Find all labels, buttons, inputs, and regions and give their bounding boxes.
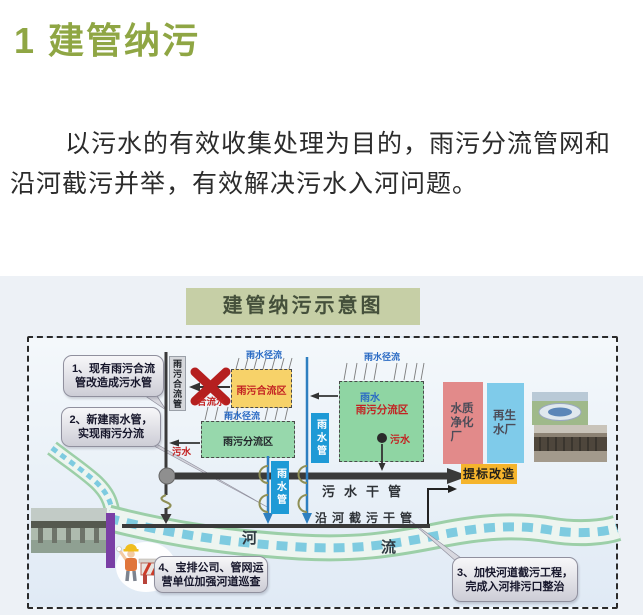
river-label-he: 河 xyxy=(242,527,257,548)
callout-4-line-1: 4、宝排公司、管网运 xyxy=(158,561,263,575)
down-arrowhead xyxy=(263,513,273,524)
callout-3: 3、加快河道截污工程， 完成入河排污口整治 xyxy=(452,557,578,602)
outfall-purple-bar xyxy=(106,513,115,568)
callout-1-line-2: 管改造成污水管 xyxy=(75,376,152,390)
bridge-photo xyxy=(31,508,107,553)
rain-pipe-label-left: 雨水管 xyxy=(271,461,289,514)
rain-runoff-label-3: 雨水径流 xyxy=(364,350,400,363)
separate-zone-right-label: 雨污分流区 xyxy=(345,402,419,417)
callout-3-line-2: 完成入河排污口整治 xyxy=(466,580,565,594)
callout-4: 4、宝排公司、管网运 营单位加强河道巡查 xyxy=(154,556,268,593)
callout-1: 1、现有雨污合流 管改造成污水管 xyxy=(63,355,164,397)
callout-4-line-2: 营单位加强河道巡查 xyxy=(162,575,261,589)
pipe-junction-node xyxy=(159,468,175,484)
river-tributary xyxy=(52,448,113,516)
plant-interior-photo xyxy=(534,425,607,462)
rain-runoff-label-1: 雨水径流 xyxy=(246,348,282,361)
rainwater-arrow-right-zone xyxy=(310,393,338,400)
callout-2: 2、新建雨水管， 实现雨污分流 xyxy=(61,407,161,447)
rain-streaks-separated-zone-right xyxy=(344,363,424,380)
intercepted-flow-arrow xyxy=(428,485,457,524)
combined-zone-label: 雨污合流区 xyxy=(233,382,290,397)
callout-1-line-1: 1、现有雨污合流 xyxy=(72,362,155,376)
pipe-break-symbol xyxy=(162,495,171,509)
plant-aerial-photo xyxy=(532,392,588,425)
sewage-label-right: 污水 xyxy=(390,431,410,446)
sewage-main-label: 污水干管 xyxy=(322,481,410,500)
pipe-crossing-symbol xyxy=(299,495,307,512)
combined-sewer-pipe-label: 雨污合流管 xyxy=(169,356,186,411)
down-arrowhead xyxy=(302,513,312,524)
callout-3-line-1: 3、加快河道截污工程， xyxy=(457,566,573,580)
callout-2-line-1: 2、新建雨水管， xyxy=(69,413,152,427)
sewage-label-left: 污水 xyxy=(172,444,191,458)
rain-pipe-label-right: 雨水管 xyxy=(311,413,329,463)
sewage-drop-arrow xyxy=(377,433,387,471)
intercepting-main-label: 沿河截污干管 xyxy=(315,509,417,526)
combined-water-label: 合流水 xyxy=(197,394,226,408)
upgrade-retrofit-badge: 提标改造 xyxy=(461,464,517,484)
callout-2-line-2: 实现雨污分流 xyxy=(78,427,144,441)
separate-zone-left-label: 雨污分流区 xyxy=(201,433,295,448)
rain-pipe-right xyxy=(299,357,312,524)
page: 1 建管纳污 以污水的有效收集处理为目的，雨污分流管网和沿河截污并举，有效解决污… xyxy=(0,0,643,615)
river-label-liu: 流 xyxy=(381,536,396,557)
rain-runoff-label-2: 雨水径流 xyxy=(224,409,260,422)
